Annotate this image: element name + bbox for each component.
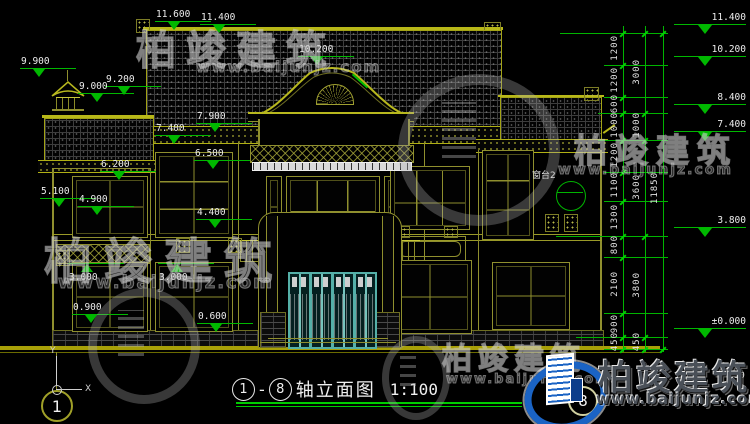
elevation-value: 7.400 [155,123,211,135]
elevation-triangle-icon [210,324,222,332]
elevation-triangle-icon [113,172,125,180]
elevation-marker: 6.500 [194,148,250,169]
right-roof-corner-ornament [584,87,599,101]
dimension-line-inner [623,26,624,352]
elevation-line [155,135,211,136]
elevation-marker: 0.600 [197,311,253,332]
cad-elevation-canvas: 窗台2 1200 1200 600 100 [0,0,750,424]
gable-wall [258,119,410,145]
bracket-ornament [545,214,559,232]
elevation-marker: 3.800 [674,215,746,237]
title-separator: - [259,380,265,399]
elevation-marker: 4.900 [78,194,134,215]
elevation-value: ±0.000 [674,316,746,327]
entrance-step [268,338,388,339]
elevation-marker: 9.900 [20,56,76,77]
title-underline [236,402,522,404]
bracket-ornament [444,226,458,238]
elevation-triangle-icon [33,69,45,77]
elevation-line [78,206,134,207]
left-roof-tiles [44,118,154,164]
title-axis-start-circle: 1 [232,378,255,401]
elevation-triangle-icon [698,228,712,237]
elevation-value: 8.400 [674,92,746,103]
dim-value: 800 [610,235,620,254]
elevation-marker: 11.400 [674,12,746,34]
elevation-marker: 10.200 [674,44,746,66]
level-line [560,33,668,34]
watermark-logo-icon [400,352,416,386]
watermark-url: www.baijunjz.com [58,272,274,293]
elevation-value: 6.500 [194,148,250,160]
watermark-logo-icon [398,74,560,226]
window-l1-far-right [492,262,570,330]
watermark-url: www.baijunjz.com [558,162,733,178]
elevation-value: 4.900 [78,194,134,206]
ucs-origin-icon [52,385,62,395]
dim-value: 900 [610,314,620,333]
elevation-value: 9.000 [78,81,134,93]
elevation-triangle-icon [53,199,65,207]
dim-value: 1300 [610,204,620,230]
elevation-marker: 9.000 [78,81,134,102]
elevation-triangle-icon [698,329,712,338]
ucs-y-axis [56,356,57,386]
elevation-triangle-icon [698,57,712,66]
carved-white-beam [252,162,412,171]
elevation-triangle-icon [91,94,103,102]
elevation-triangle-icon [91,207,103,215]
elevation-triangle-icon [207,161,219,169]
elevation-line [78,93,134,94]
central-lattice-band [250,145,414,163]
elevation-marker: 6.200 [100,159,156,180]
elevation-line [197,323,253,324]
dim-value: 3800 [632,272,642,298]
ucs-x-label: X [85,384,91,394]
elevation-line [194,160,250,161]
elevation-value: 7.900 [196,111,252,123]
elevation-line [20,68,76,69]
title-name: 轴立面图 [296,376,376,402]
wall-right-edge [600,150,602,346]
entrance-step [260,342,396,343]
elevation-marker: ±0.000 [674,316,746,338]
elevation-line [196,219,252,220]
elevation-value: 6.200 [100,159,156,171]
brand-logo-block-icon [570,378,583,402]
dimension-line-middle [645,26,646,352]
dim-value: 450 [632,332,642,351]
ucs-y-label: Y [50,346,56,356]
pavilion-base [52,109,84,111]
elevation-marker: 7.400 [155,123,211,144]
brand-logo-url: www.baijunjz.com [596,390,750,408]
elevation-value: 3.800 [674,215,746,226]
axis-bubble-1-label: 1 [52,397,62,416]
dim-value: 600 [610,94,620,113]
title-axis-end-circle: 8 [269,378,292,401]
dimension-line-outer [663,26,664,352]
elevation-line [100,171,156,172]
elevation-triangle-icon [698,25,712,34]
watermark-logo-icon [382,336,450,420]
elevation-value: 11.400 [674,12,746,23]
detail-callout-circle [556,181,586,211]
dim-value: 450 [610,332,620,351]
elevation-triangle-icon [168,136,180,144]
dim-value: 1200 [610,67,620,93]
watermark-logo-icon [118,310,144,356]
level-line [604,257,668,258]
watermark-logo-icon [442,102,476,158]
title-underline-secondary [236,406,522,407]
elevation-marker: 8.400 [674,92,746,114]
elevation-value: 0.600 [197,311,253,323]
elevation-value: 10.200 [674,44,746,55]
dim-value: 3000 [632,59,642,85]
watermark-url: www.baijunjz.com [196,58,381,76]
bracket-ornament [564,214,578,232]
elevation-triangle-icon [698,105,712,114]
dim-value: 1200 [610,35,620,61]
watermark-logo-icon [88,288,200,404]
dim-value: 2100 [610,271,620,297]
elevation-value: 4.400 [196,207,252,219]
elevation-value: 9.900 [20,56,76,68]
